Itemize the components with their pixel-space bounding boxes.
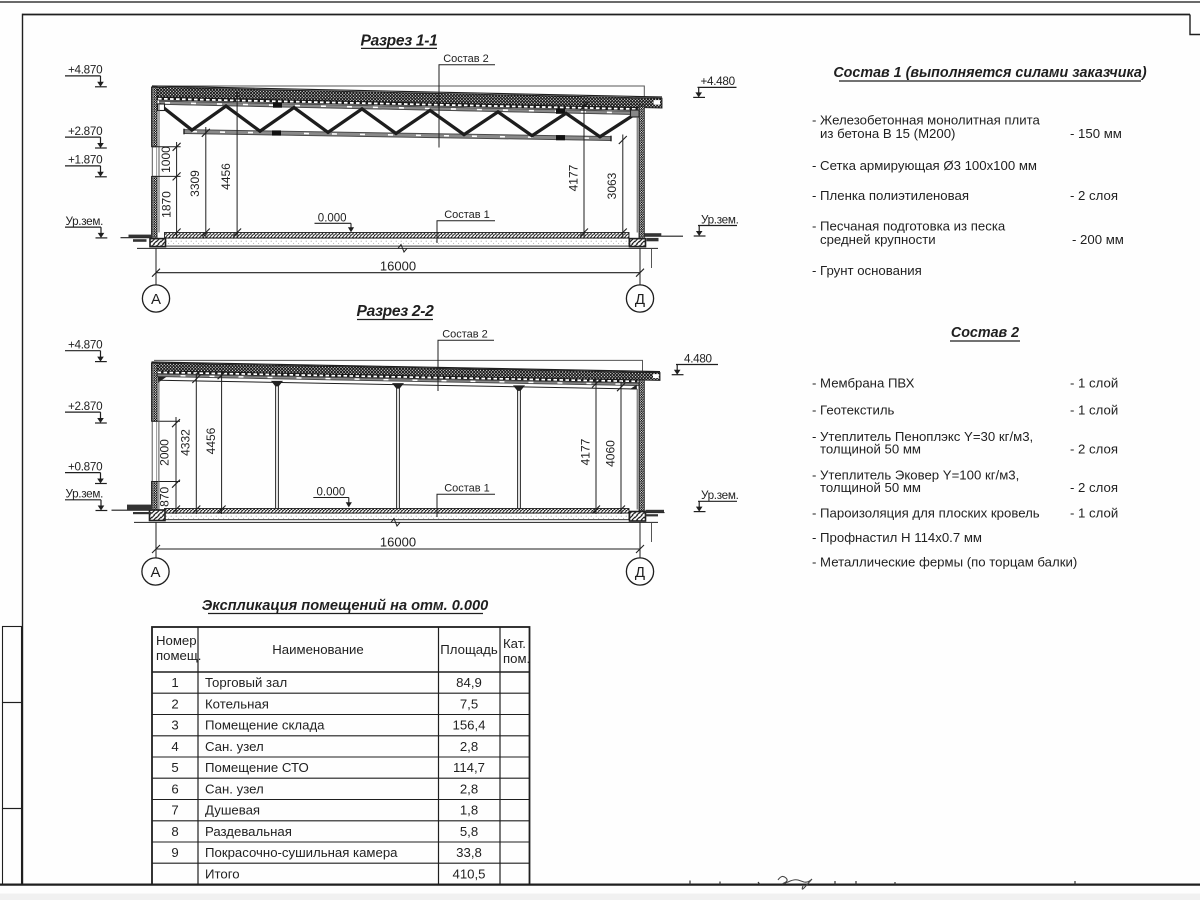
svg-text:- Грунт основания: - Грунт основания — [812, 263, 922, 278]
svg-text:33,8: 33,8 — [456, 845, 482, 860]
svg-text:Помещение склада: Помещение склада — [205, 718, 325, 733]
svg-text:- Сетка армирующая Ø3 100х100: - Сетка армирующая Ø3 100х100 мм — [812, 158, 1037, 173]
svg-text:+2.870: +2.870 — [68, 400, 103, 413]
svg-text:- Геотекстиль: - Геотекстиль — [812, 403, 895, 418]
svg-text:9: 9 — [171, 845, 178, 860]
svg-text:Состав 2: Состав 2 — [442, 328, 488, 340]
svg-text:1: 1 — [171, 675, 178, 690]
svg-text:16000: 16000 — [380, 258, 416, 273]
svg-text:410,5: 410,5 — [452, 867, 485, 882]
svg-text:0.000: 0.000 — [318, 212, 347, 224]
svg-text:1870: 1870 — [159, 191, 173, 218]
svg-text:3: 3 — [171, 718, 178, 733]
svg-text:4: 4 — [171, 739, 178, 754]
svg-text:средней крупности: средней крупности — [820, 232, 936, 247]
svg-text:4332: 4332 — [179, 429, 193, 456]
svg-text:Экспликация помещений на отм.: Экспликация помещений на отм. 0.000 — [202, 598, 489, 614]
svg-text:+4.870: +4.870 — [68, 339, 103, 352]
svg-text:4456: 4456 — [219, 163, 233, 190]
svg-text:- 1 слой: - 1 слой — [1070, 506, 1118, 521]
svg-text:16000: 16000 — [380, 535, 416, 550]
svg-text:- Пленка полиэтиленовая: - Пленка полиэтиленовая — [812, 188, 969, 203]
svg-text:Раздевальная: Раздевальная — [205, 824, 292, 839]
svg-text:Состав 2: Состав 2 — [951, 325, 1019, 341]
svg-text:Ур.зем.: Ур.зем. — [66, 215, 104, 228]
svg-text:2: 2 — [171, 697, 178, 712]
svg-text:из бетона В 15 (М200): из бетона В 15 (М200) — [820, 126, 955, 141]
svg-text:7,5: 7,5 — [460, 697, 478, 712]
svg-text:толщиной 50 мм: толщиной 50 мм — [820, 442, 921, 457]
svg-text:Площадь: Площадь — [440, 642, 498, 657]
svg-text:Итого: Итого — [205, 867, 240, 882]
svg-text:- 2 слоя: - 2 слоя — [1070, 188, 1118, 203]
svg-text:помещ.: помещ. — [156, 648, 201, 663]
svg-text:0.000: 0.000 — [317, 487, 346, 499]
svg-text:Разрез 1-1: Разрез 1-1 — [360, 32, 437, 49]
svg-text:3309: 3309 — [188, 170, 202, 197]
svg-text:+2.870: +2.870 — [68, 125, 103, 138]
svg-text:Д: Д — [635, 564, 645, 581]
svg-text:1000: 1000 — [159, 146, 173, 173]
svg-text:Котельная: Котельная — [205, 697, 269, 712]
svg-text:+4.870: +4.870 — [68, 64, 103, 77]
svg-text:- 200 мм: - 200 мм — [1072, 232, 1124, 247]
svg-text:114,7: 114,7 — [453, 760, 485, 775]
svg-text:Состав 1: Состав 1 — [444, 209, 490, 221]
svg-text:Кат.: Кат. — [503, 636, 526, 651]
svg-text:- Пароизоляция для плоских кро: - Пароизоляция для плоских кровель — [812, 506, 1040, 521]
svg-text:Помещение СТО: Помещение СТО — [205, 760, 309, 775]
svg-text:- Мембрана ПВХ: - Мембрана ПВХ — [812, 376, 915, 391]
svg-text:- 2 слоя: - 2 слоя — [1070, 442, 1118, 457]
svg-text:+1.870: +1.870 — [68, 154, 103, 167]
svg-text:870: 870 — [158, 486, 172, 506]
svg-text:4060: 4060 — [603, 440, 617, 467]
svg-text:- Металлические фермы (по торц: - Металлические фермы (по торцам балки) — [812, 555, 1077, 570]
svg-text:3063: 3063 — [605, 172, 619, 199]
svg-text:- 1 слой: - 1 слой — [1070, 403, 1118, 418]
svg-text:А: А — [150, 564, 160, 581]
svg-text:Наименование: Наименование — [272, 642, 363, 657]
svg-text:+0.870: +0.870 — [68, 460, 103, 473]
svg-text:8: 8 — [171, 824, 178, 839]
svg-text:- 1 слой: - 1 слой — [1070, 376, 1118, 391]
svg-text:Д: Д — [635, 291, 645, 308]
svg-text:Сан. узел: Сан. узел — [205, 782, 264, 797]
svg-text:Ур.зем.: Ур.зем. — [701, 489, 739, 502]
svg-text:156,4: 156,4 — [452, 718, 485, 733]
svg-text:6: 6 — [171, 782, 178, 797]
svg-text:4.480: 4.480 — [684, 352, 713, 365]
svg-text:Состав 1: Состав 1 — [444, 482, 490, 494]
svg-text:- 2 слоя: - 2 слоя — [1070, 480, 1118, 495]
svg-text:2,8: 2,8 — [460, 782, 478, 797]
svg-text:толщиной 50 мм: толщиной 50 мм — [820, 480, 921, 495]
svg-text:- Профнастил Н 114х0.7 мм: - Профнастил Н 114х0.7 мм — [812, 530, 982, 545]
svg-text:- 150 мм: - 150 мм — [1070, 126, 1122, 141]
svg-text:5: 5 — [171, 760, 178, 775]
svg-text:Ур.зем.: Ур.зем. — [66, 488, 104, 501]
svg-text:Разрез 2-2: Разрез 2-2 — [356, 303, 434, 320]
svg-text:Покрасочно-сушильная камера: Покрасочно-сушильная камера — [205, 845, 398, 860]
svg-text:Номер: Номер — [156, 633, 197, 648]
svg-text:4456: 4456 — [204, 427, 218, 454]
svg-text:84,9: 84,9 — [456, 675, 482, 690]
svg-text:5,8: 5,8 — [460, 824, 478, 839]
svg-text:2,8: 2,8 — [460, 739, 478, 754]
svg-text:Состав 2: Состав 2 — [443, 53, 489, 65]
svg-text:Ур.зем.: Ур.зем. — [701, 213, 739, 226]
svg-text:Душевая: Душевая — [205, 803, 260, 818]
svg-text:Состав 1 (выполняется силами з: Состав 1 (выполняется силами заказчика) — [833, 65, 1146, 81]
svg-text:Торговый зал: Торговый зал — [205, 675, 287, 690]
svg-text:+4.480: +4.480 — [701, 75, 736, 88]
svg-text:Сан. узел: Сан. узел — [205, 739, 264, 754]
svg-text:пом.: пом. — [503, 651, 530, 666]
svg-text:1,8: 1,8 — [460, 803, 478, 818]
svg-text:4177: 4177 — [566, 164, 580, 191]
svg-text:4177: 4177 — [578, 438, 592, 465]
svg-text:2000: 2000 — [158, 439, 172, 466]
svg-text:7: 7 — [171, 803, 178, 818]
svg-text:А: А — [151, 291, 161, 308]
